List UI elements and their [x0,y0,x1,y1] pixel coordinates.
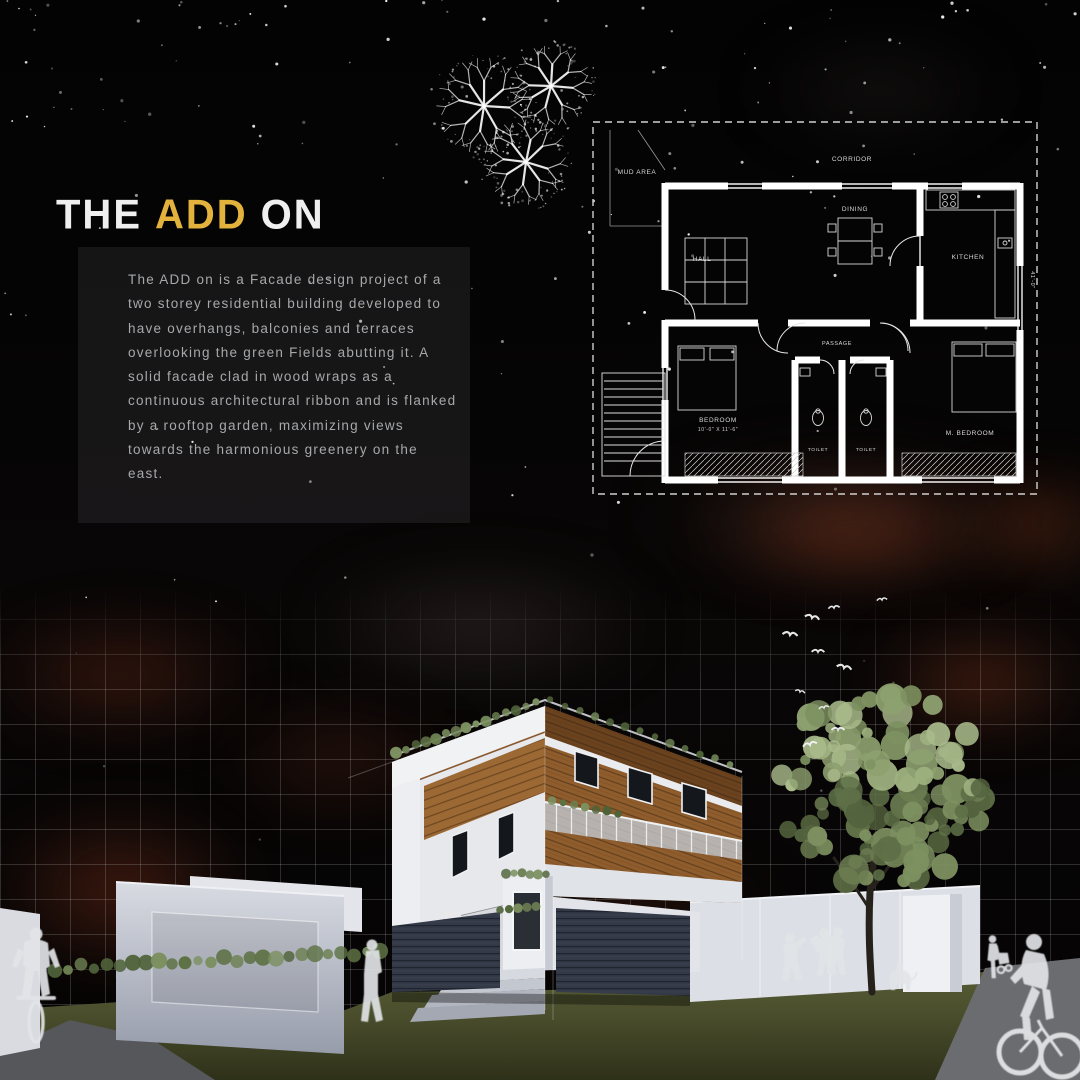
title-prefix: THE [56,192,142,238]
plan-label-corridor: CORRIDOR [832,156,872,163]
plan-label-toilet: TOILET [808,447,828,453]
plan-labels: MUD AREA CORRIDOR HALL DINING KITCHEN PA… [618,156,1035,453]
plan-label-mud-area: MUD AREA [618,169,657,176]
plan-furniture [678,190,1016,426]
plan-label-toilet: TOILET [856,447,876,453]
plan-label-bedroom: BEDROOM [699,417,737,424]
description-panel: The ADD on is a Facade design project of… [78,247,470,523]
plan-stair [602,373,665,476]
plan-boundary [593,122,1037,494]
plan-wardrobe-hatch [685,453,803,476]
plan-label-kitchen: KITCHEN [952,254,985,261]
page-title: THEADDON [56,192,338,239]
description-text: The ADD on is a Facade design project of… [128,268,458,487]
floor-plan-diagram: MUD AREA CORRIDOR HALL DINING KITCHEN PA… [590,118,1040,498]
poster-canvas: THEADDON The ADD on is a Facade design p… [0,0,1080,1080]
site-lines [610,130,665,226]
title-suffix: ON [261,192,325,238]
plan-label-right-dim: 41'-0" [1029,271,1035,289]
plan-wardrobe-hatch [902,453,1016,476]
plan-label-bedroom-dim: 10'-0" X 11'-6" [698,427,738,433]
plan-walls [665,183,1020,483]
plan-label-passage: PASSAGE [822,341,852,347]
utility-box [903,894,962,992]
plan-door-arcs [630,236,920,476]
render-scene [0,540,1080,1080]
title-accent: ADD [155,192,248,238]
plan-label-dining: DINING [842,206,868,213]
tree-canopy [771,683,995,893]
plan-label-hall: HALL [693,256,712,263]
plan-label-master-bedroom: M. BEDROOM [946,430,995,437]
